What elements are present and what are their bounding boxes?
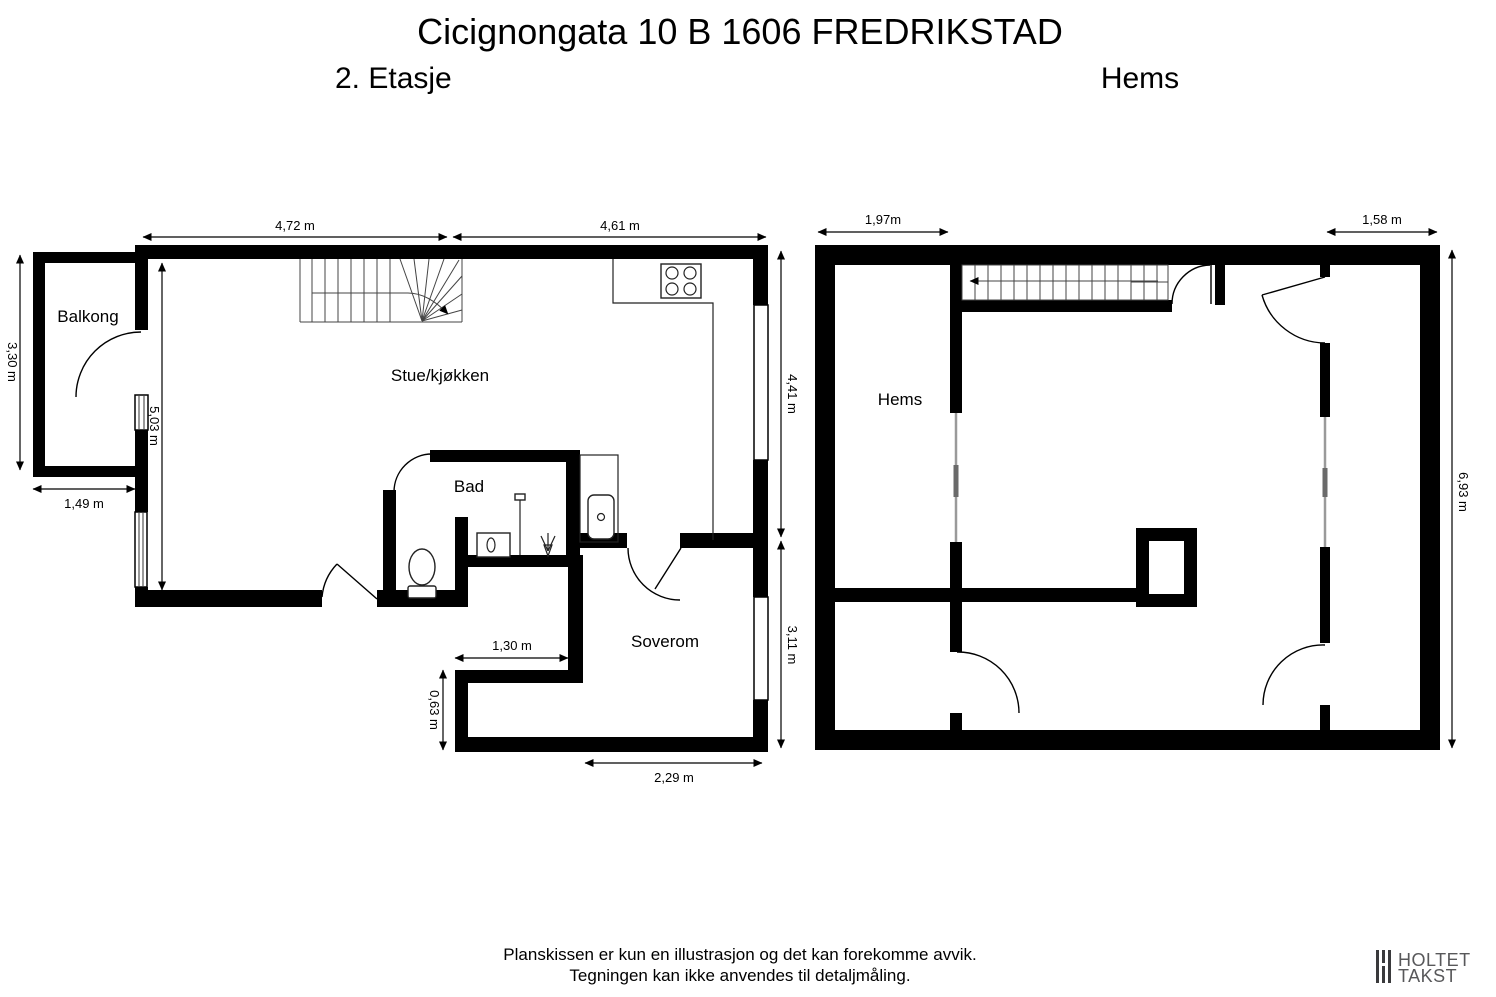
dim-1-49: 1,49 m [64,496,104,511]
walls-hems [815,245,1440,750]
doors-hems [957,265,1325,713]
door-arc-balcony [76,332,141,397]
door-arc-bad [394,454,432,492]
doors-2-etasje [76,332,681,600]
kitchen-sink-icon [580,455,618,542]
dim-4-61: 4,61 m [600,218,640,233]
door-arc-understairs [1172,265,1211,304]
washing-machine-icon [477,533,510,557]
logo-bars-icon [1376,950,1391,983]
window-stue-right [754,305,768,460]
holtet-takst-logo: HOLTET TAKST [1376,950,1471,986]
stairs-icon-hems [962,265,1168,300]
stove-icon [661,264,701,298]
stairs-icon-2-etasje [300,259,462,322]
dim-2-29: 2,29 m [654,770,694,785]
window-balcony [135,395,148,430]
kitchen-counter-icon [613,259,713,540]
window-stue-left [135,512,147,587]
floor-plan-page: Cicignongata 10 B 1606 FREDRIKSTAD 2. Et… [0,0,1496,997]
dim-4-72: 4,72 m [275,218,315,233]
dim-1-58: 1,58 m [1362,212,1402,227]
door-arc-stue [322,564,377,599]
window-soverom [754,597,768,700]
dim-0-63: 0,63 m [427,690,442,730]
logo-text-line-2: TAKST [1398,966,1457,986]
door-arc-soverom [628,548,681,600]
room-label-stue: Stue/kjøkken [391,366,489,385]
dim-1-30: 1,30 m [492,638,532,653]
door-arc-top-right [1262,277,1325,343]
room-label-soverom: Soverom [631,632,699,651]
floor-label-left: 2. Etasje [335,62,452,95]
plan-2-etasje: Balkong Stue/kjøkken Bad Soverom 4,72 m … [5,218,800,785]
dim-1-97: 1,97m [865,212,901,227]
dim-5-03: 5,03 m [147,406,162,446]
dim-6-93: 6,93 m [1456,472,1471,512]
door-arc-bottom-right [1263,645,1325,705]
shower-rod-icon [515,494,525,555]
toilet-icon [408,549,436,598]
walls-2-etasje [33,245,768,752]
floor-plan-image: Cicignongata 10 B 1606 FREDRIKSTAD 2. Et… [0,0,1496,997]
dim-4-41: 4,41 m [785,374,800,414]
shower-head-icon [541,533,555,556]
railings-hems [956,413,1325,547]
plan-hems: Hems 1,97m 1,58 m 6,93 m [815,212,1471,750]
page-title: Cicignongata 10 B 1606 FREDRIKSTAD [417,11,1063,52]
dim-3-30: 3,30 m [5,342,20,382]
room-label-hems: Hems [878,390,922,409]
room-label-bad: Bad [454,477,484,496]
disclaimer-line-1: Planskissen er kun en illustrasjon og de… [503,945,976,964]
room-label-balkong: Balkong [57,307,118,326]
footer: Planskissen er kun en illustrasjon og de… [503,945,1470,986]
dim-3-11: 3,11 m [785,626,800,665]
floor-label-right: Hems [1101,62,1179,95]
door-arc-bottom-left [957,652,1019,713]
bathroom-fixtures [408,494,555,598]
disclaimer-line-2: Tegningen kan ikke anvendes til detaljmå… [569,966,910,985]
chimney-icon [1136,528,1197,607]
kitchen-fixtures [580,259,713,542]
